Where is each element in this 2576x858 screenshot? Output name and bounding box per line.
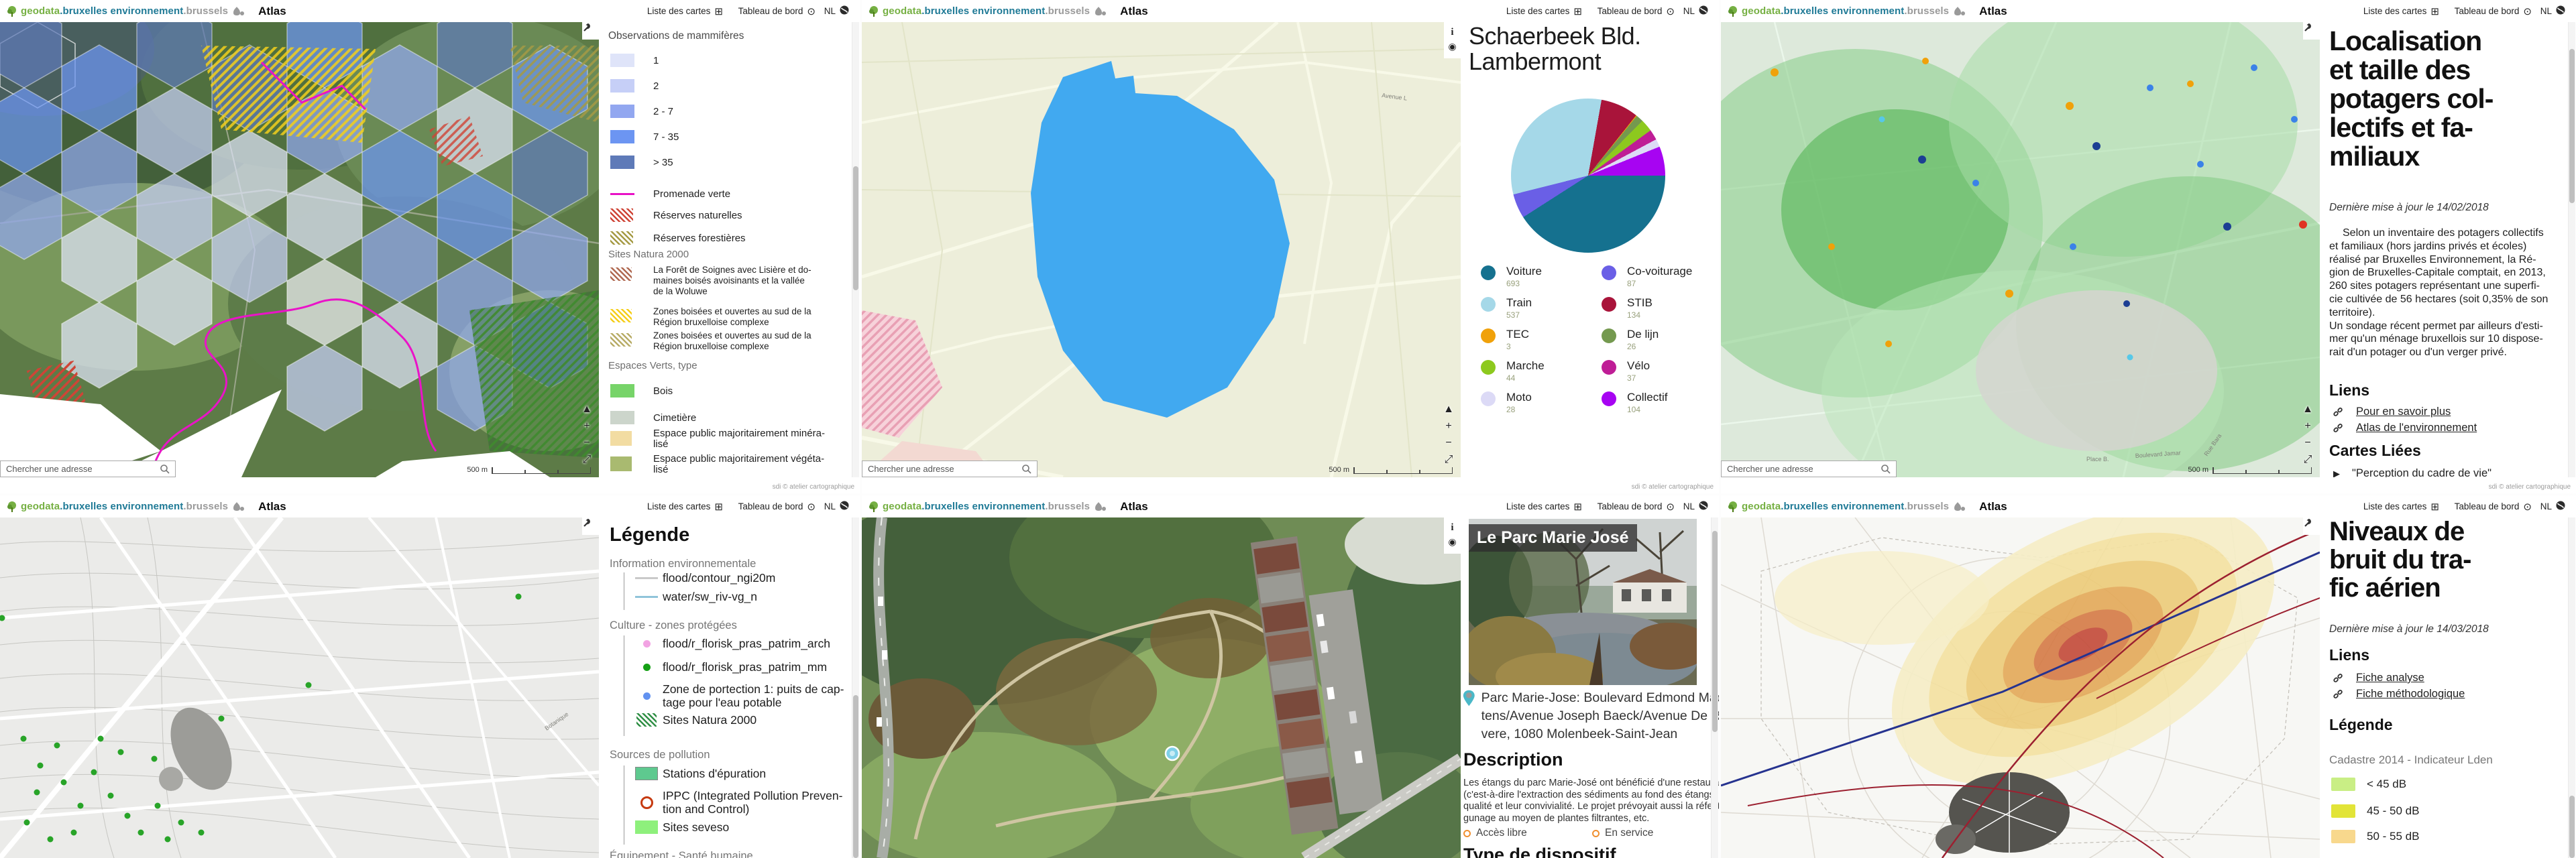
legend-dot — [1481, 360, 1496, 375]
iris-icon — [232, 501, 244, 511]
search-placeholder: Chercher une adresse — [6, 464, 93, 474]
link-fiche-methodologique[interactable]: Fiche méthodologique — [2333, 688, 2465, 700]
hatch-swatch — [610, 309, 632, 322]
tree-icon — [1728, 501, 1738, 513]
nav-language-nl[interactable]: NL — [2540, 0, 2565, 22]
legend-section-title: Sites Natura 2000 — [608, 249, 689, 260]
map-attribution: sdi © atelier cartographique — [773, 483, 854, 491]
swatch — [610, 105, 634, 118]
pie-legend-item: Co-voiturage87 — [1602, 265, 1719, 288]
globe-icon — [1699, 501, 1708, 510]
line-swatch — [635, 596, 658, 598]
fullscreen-button[interactable]: ⤢ — [580, 451, 594, 468]
nav-tableau-de-bord[interactable]: Tableau de bord⊙ — [738, 495, 816, 517]
brand-logo[interactable]: geodata.bruxelles environnement.brussels — [869, 5, 1109, 17]
link-fiche-analyse[interactable]: Fiche analyse — [2333, 672, 2424, 684]
legend-espaces-row: Cimetière — [610, 411, 696, 424]
scrollbar-thumb[interactable] — [1712, 531, 1718, 732]
status-acces-libre: Accès libre — [1463, 827, 1527, 839]
pie-legend-item: TEC3 — [1481, 328, 1600, 351]
scale-bar: 500 m — [2188, 466, 2312, 474]
legend-row: Sites seveso — [630, 820, 729, 834]
app-title: Atlas — [1979, 5, 2007, 18]
globe-icon — [840, 501, 849, 510]
nav-liste-des-cartes[interactable]: Liste des cartes⊞ — [647, 495, 723, 517]
app-title: Atlas — [258, 5, 286, 18]
swatch — [610, 431, 632, 446]
scrollbar-thumb[interactable] — [853, 166, 858, 290]
brand-brussels: .brussels — [183, 5, 228, 17]
map-tools-button[interactable] — [582, 517, 599, 535]
globe-icon — [840, 5, 849, 15]
nav-liste-des-cartes[interactable]: Liste des cartes⊞ — [647, 0, 723, 22]
legend-row: flood/r_florisk_pras_patrim_arch — [630, 637, 830, 650]
legend-row: Zone de portection 1: puits de cap- tage… — [630, 682, 844, 709]
legend-row: < 45 dB — [2331, 778, 2406, 791]
legend-line-row: Promenade verte — [610, 188, 730, 200]
nav-liste-des-cartes[interactable]: Liste des cartes⊞ — [2363, 0, 2439, 22]
rect-swatch — [635, 767, 658, 780]
legend-row: IPPC (Integrated Pollution Preven- tion … — [630, 789, 842, 816]
park-photo: Le Parc Marie José — [1469, 519, 1697, 685]
pie-legend-item: Vélo37 — [1602, 359, 1719, 383]
line-swatch — [635, 577, 658, 579]
sidebar-scrollbar[interactable] — [2568, 22, 2575, 477]
article-panel-potagers: Localisation et taille des potagers col-… — [2320, 22, 2576, 477]
linked-map-item[interactable]: ▶"Perception du cadre de vie" — [2333, 467, 2491, 477]
zoom-in-button[interactable]: + — [580, 418, 594, 434]
tree-icon — [1728, 5, 1738, 17]
legend-row: flood/contour_ngi20m — [630, 571, 775, 585]
iris-icon — [1094, 6, 1106, 16]
hatch-swatch — [610, 333, 632, 347]
grid-icon: ⊞ — [2430, 5, 2439, 17]
legend-section-title: Sources de pollution — [610, 749, 710, 761]
globe-icon — [2556, 501, 2565, 510]
map-tools-button[interactable] — [2303, 517, 2320, 535]
search-icon — [1881, 464, 1891, 474]
locate-button[interactable]: ◉ — [1444, 535, 1461, 548]
target-icon: ⊙ — [1666, 5, 1675, 17]
brand-geodata: geodata — [21, 5, 60, 17]
link-pour-en-savoir-plus[interactable]: Pour en savoir plus — [2333, 406, 2451, 418]
grid-icon: ⊞ — [2430, 501, 2439, 513]
legend-natura-row: Zones boisées et ouvertes au sud de la R… — [610, 330, 811, 352]
swatch — [2331, 778, 2355, 791]
link-icon — [2333, 690, 2343, 698]
bullet-icon — [1592, 830, 1600, 837]
legend-natura-row: La Forêt de Soignes avec Lisière et do- … — [610, 265, 811, 297]
swatch — [2331, 804, 2355, 818]
brand-logo[interactable]: geodata.bruxelles environnement.brussels — [1728, 5, 1968, 17]
legend-class-row: > 35 — [610, 156, 673, 169]
legend-dot — [1481, 391, 1496, 406]
app-header: geodata.bruxelles environnement.brussels… — [0, 495, 860, 517]
legend-section-title: Espaces Verts, type — [608, 360, 697, 371]
swatch — [610, 79, 634, 93]
legend-dot — [1602, 328, 1616, 343]
app-header: geodata.bruxelles environnement.brussels… — [0, 0, 860, 22]
app-header: geodata.bruxelles environnement.brussels… — [862, 0, 1719, 22]
map-canvas-potagers[interactable]: Place B. Boulevard Jamar Rue Bara Cherch… — [1721, 22, 2320, 477]
type-section-title: Type de dispositif — [1463, 845, 1616, 858]
pie-legend-item: Moto28 — [1481, 391, 1600, 414]
legend-natura-row: Zones boisées et ouvertes au sud de la R… — [610, 306, 811, 328]
description-body: Les étangs du parc Marie-José ont bénéfi… — [1463, 778, 1719, 824]
swatch — [610, 130, 634, 143]
search-icon — [1021, 464, 1031, 474]
zoom-in-button[interactable]: + — [2301, 418, 2314, 434]
legend-row: Stations d'épuration — [630, 767, 766, 780]
iris-icon — [1953, 501, 1965, 511]
legend-row: 50 - 55 dB — [2331, 830, 2419, 843]
legend-row: flood/r_florisk_pras_patrim_mm — [630, 660, 827, 674]
target-icon: ⊙ — [1666, 501, 1675, 513]
article-panel-bruit: Niveaux de bruit du tra- fic aérien Dern… — [2320, 517, 2576, 858]
fullscreen-button[interactable]: ⤢ — [1442, 451, 1455, 468]
pan-up-button[interactable]: ▲ — [580, 401, 594, 418]
nav-tableau-de-bord[interactable]: Tableau de bord⊙ — [1598, 0, 1675, 22]
info-button[interactable]: i — [1444, 520, 1461, 535]
sidebar-scrollbar[interactable] — [852, 22, 859, 477]
target-icon: ⊙ — [807, 501, 816, 513]
nav-tableau-de-bord[interactable]: Tableau de bord⊙ — [738, 0, 816, 22]
play-icon: ▶ — [2333, 469, 2340, 478]
swatch — [610, 456, 632, 471]
legend-class-row: 2 — [610, 79, 659, 93]
legend-row: 45 - 50 dB — [2331, 804, 2419, 818]
globe-icon — [1699, 5, 1708, 15]
legend-section-title: Information environnementale — [610, 558, 756, 570]
target-icon: ⊙ — [2523, 501, 2532, 513]
sidebar-scrollbar[interactable] — [2568, 517, 2575, 858]
legend-class-row: 7 - 35 — [610, 130, 679, 143]
pie-legend-item: Voiture693 — [1481, 265, 1600, 288]
scale-bar: 500 m — [467, 466, 591, 474]
map-marker — [1166, 747, 1179, 760]
panel-observations-mammiferes: geodata.bruxelles environnement.brussels… — [0, 0, 860, 493]
sidebar-scrollbar[interactable] — [852, 517, 859, 858]
sidebar-scrollbar[interactable] — [1711, 517, 1718, 858]
brand-logo[interactable]: geodata.bruxelles environnement.brussels — [7, 5, 247, 17]
link-atlas-environnement[interactable]: Atlas de l'environnement — [2333, 422, 2477, 434]
brand-logo[interactable]: geodata.bruxelles environnement.brussels — [7, 501, 247, 513]
scale-bar: 500 m — [1329, 466, 1453, 474]
legend-subtitle: Cadastre 2014 - Indicateur Lden — [2329, 753, 2493, 767]
iris-icon — [1953, 6, 1965, 16]
street-label: Place B. — [2086, 456, 2109, 463]
nav-liste-des-cartes[interactable]: Liste des cartes⊞ — [2363, 495, 2439, 517]
map-tools-button[interactable] — [582, 22, 599, 40]
iris-icon — [1094, 501, 1106, 511]
map-pin-icon — [1462, 689, 1476, 707]
nav-language-nl[interactable]: NL — [1683, 495, 1708, 517]
app-header: geodata.bruxelles environnement.brussels… — [1721, 495, 2576, 517]
pie-legend-item: Collectif104 — [1602, 391, 1719, 414]
search-icon — [160, 464, 170, 474]
swatch — [610, 384, 634, 397]
nav-language-nl[interactable]: NL — [824, 0, 849, 22]
tree-icon — [869, 5, 879, 17]
screenshot-montage: geodata.bruxelles environnement.brussels… — [0, 0, 2576, 858]
panel-parc-marie-jose: geodata.bruxelles environnement.brussels… — [862, 495, 1719, 858]
app-title: Atlas — [258, 500, 286, 513]
panel-potagers: geodata.bruxelles environnement.brussels… — [1721, 0, 2576, 493]
nav-tableau-de-bord[interactable]: Tableau de bord⊙ — [2455, 495, 2532, 517]
green-density-layer — [1721, 22, 2320, 477]
dot-swatch — [643, 692, 651, 700]
pan-up-button[interactable]: ▲ — [2301, 401, 2314, 418]
hatch-swatch — [610, 208, 633, 222]
legend-class-row: 1 — [610, 54, 659, 67]
grid-icon: ⊞ — [1573, 5, 1582, 17]
scrollbar-thumb[interactable] — [2569, 49, 2575, 203]
app-header: geodata.bruxelles environnement.brussels… — [1721, 0, 2576, 22]
description-title: Description — [1463, 749, 1563, 770]
pie-legend-item: Train537 — [1481, 296, 1600, 320]
iris-icon — [232, 6, 244, 16]
scrollbar-thumb[interactable] — [2569, 796, 2575, 858]
panel-pollution-legende: geodata.bruxelles environnement.brussels… — [0, 495, 860, 858]
legend-espaces-row: Espace public majoritairement végéta- li… — [610, 454, 824, 475]
swatch — [2331, 830, 2355, 843]
noise-contour-west — [1775, 551, 1989, 645]
nav-tableau-de-bord[interactable]: Tableau de bord⊙ — [2455, 0, 2532, 22]
map-canvas-mammals[interactable]: Chercher une adresse 500 m ▲ + − ⤢ — [0, 22, 599, 477]
brand-env: .bruxelles environnement — [60, 5, 183, 17]
zoom-out-button[interactable]: − — [580, 434, 594, 451]
map-attribution: sdi © atelier cartographique — [2489, 483, 2571, 491]
grid-icon: ⊞ — [714, 501, 723, 513]
article-body: Selon un inventaire des potagers collect… — [2329, 227, 2565, 359]
photo-title-overlay: Le Parc Marie José — [1469, 524, 1637, 552]
brand-logo[interactable]: geodata.bruxelles environnement.brussels — [1728, 501, 1968, 513]
bullet-icon — [1463, 830, 1471, 837]
wrench-icon — [2303, 517, 2313, 528]
pie-legend-item: De lijn26 — [1602, 328, 1719, 351]
tree-icon — [869, 501, 879, 513]
target-icon: ⊙ — [2523, 5, 2532, 17]
scrollbar-thumb[interactable] — [853, 695, 858, 858]
app-title: Atlas — [1120, 500, 1148, 513]
search-address-input[interactable]: Chercher une adresse — [862, 461, 1038, 477]
grid-icon: ⊞ — [714, 5, 723, 17]
search-address-input[interactable]: Chercher une adresse — [0, 461, 176, 477]
legend-panel-pollution: Légende Information environnementale flo… — [599, 517, 860, 858]
legend-dot — [1602, 391, 1616, 406]
brand-logo[interactable]: geodata.bruxelles environnement.brussels — [869, 501, 1109, 513]
nav-language-nl[interactable]: NL — [1683, 0, 1708, 22]
legend-dot — [1481, 265, 1496, 280]
wrench-icon — [582, 517, 592, 528]
pie-legend-col1: Voiture693 Train537 TEC3 Marche44 Moto28 — [1481, 265, 1600, 422]
line-swatch — [610, 193, 634, 195]
zoom-out-button[interactable]: − — [2301, 434, 2314, 451]
article-title: Localisation et taille des potagers col-… — [2329, 27, 2567, 171]
legend-title: Observations de mammifères — [608, 30, 744, 42]
legend-section-title: Légende — [2329, 716, 2393, 734]
map-canvas-aerial[interactable]: i ◉ — [862, 517, 1461, 858]
nav-language-nl[interactable]: NL — [2540, 495, 2565, 517]
last-updated: Dernière mise à jour le 14/03/2018 — [2329, 623, 2489, 635]
nav-liste-des-cartes[interactable]: Liste des cartes⊞ — [1506, 0, 1582, 22]
wrench-icon — [2303, 22, 2313, 32]
app-title: Atlas — [1120, 5, 1148, 18]
modal-split-pie-chart — [1511, 99, 1665, 253]
app-title: Atlas — [1979, 500, 2007, 513]
zoom-out-button[interactable]: − — [1442, 434, 1455, 451]
swatch — [610, 411, 634, 424]
legend-panel-mammals: Observations de mammifères 1 2 2 - 7 7 -… — [599, 22, 860, 477]
fullscreen-button[interactable]: ⤢ — [2301, 451, 2314, 468]
app-header: geodata.bruxelles environnement.brussels… — [862, 495, 1719, 517]
links-section-title: Liens — [2329, 381, 2369, 400]
map-canvas-schaerbeek[interactable]: Avenue L Chercher une adresse 500 m ▲ + … — [862, 22, 1461, 477]
legend-title: Légende — [610, 524, 689, 546]
locate-button[interactable]: ◉ — [1444, 40, 1461, 53]
rect-swatch — [635, 820, 658, 834]
pie-legend-item: Marche44 — [1481, 359, 1600, 383]
link-icon — [2333, 408, 2343, 416]
info-button[interactable]: i — [1444, 25, 1461, 40]
dot-swatch — [643, 664, 651, 671]
links-section-title: Liens — [2329, 646, 2369, 664]
legend-row: Sites Natura 2000 — [630, 713, 757, 727]
legend-hatch-row: Réserves forestières — [610, 231, 746, 245]
zoom-in-button[interactable]: + — [1442, 418, 1455, 434]
hatch-swatch — [636, 713, 657, 727]
ring-swatch — [640, 796, 653, 809]
wrench-icon — [582, 22, 592, 32]
legend-row: water/sw_riv-vg_n — [630, 590, 757, 603]
grid-icon: ⊞ — [1573, 501, 1582, 513]
dot-swatch — [643, 640, 651, 648]
legend-section-title: Équipement - Santé humaine — [610, 850, 753, 858]
link-icon — [2333, 674, 2343, 682]
legend-dot — [1481, 328, 1496, 343]
panel-schaerbeek-lambermont: geodata.bruxelles environnement.brussels… — [862, 0, 1719, 493]
map-canvas-noise[interactable] — [1721, 517, 2320, 858]
legend-section-title: Culture - zones protégées — [610, 619, 737, 632]
panel-bruit-aerien: geodata.bruxelles environnement.brussels… — [1721, 495, 2576, 858]
linked-maps-section-title: Cartes Liées — [2329, 442, 2421, 460]
hatch-swatch — [610, 267, 632, 281]
legend-dot — [1481, 297, 1496, 312]
tree-icon — [7, 5, 17, 17]
globe-icon — [2556, 5, 2565, 15]
last-updated: Dernière mise à jour le 14/02/2018 — [2329, 202, 2489, 214]
legend-espaces-row: Espace public majoritairement minéra- li… — [610, 428, 825, 450]
target-icon: ⊙ — [807, 5, 816, 17]
feature-address: Parc Marie-Jose: Boulevard Edmond Mach t… — [1481, 689, 1719, 743]
status-en-service: En service — [1592, 827, 1653, 839]
search-address-input[interactable]: Chercher une adresse — [1721, 461, 1897, 477]
district-stats-panel: Schaerbeek Bld. Lambermont Voiture693 Tr… — [1461, 22, 1719, 477]
tree-icon — [7, 501, 17, 513]
legend-class-row: 2 - 7 — [610, 105, 673, 118]
legend-espaces-row: Bois — [610, 384, 673, 397]
map-canvas-pollution[interactable]: Botanique — [0, 517, 599, 858]
legend-dot — [1602, 265, 1616, 280]
nav-language-nl[interactable]: NL — [824, 495, 849, 517]
hatch-swatch — [610, 231, 633, 245]
article-title: Niveaux de bruit du tra- fic aérien — [2329, 517, 2567, 602]
map-tools-button[interactable] — [2303, 22, 2320, 40]
link-icon — [2333, 424, 2343, 432]
pie-legend-item: STIB134 — [1602, 296, 1719, 320]
legend-hatch-row: Réserves naturelles — [610, 208, 742, 222]
swatch — [610, 156, 634, 169]
nav-tableau-de-bord[interactable]: Tableau de bord⊙ — [1598, 495, 1675, 517]
swatch — [610, 54, 634, 67]
legend-dot — [1602, 360, 1616, 375]
map-attribution: sdi © atelier cartographique — [1632, 483, 1714, 491]
pan-up-button[interactable]: ▲ — [1442, 401, 1455, 418]
district-title: Schaerbeek Bld. Lambermont — [1469, 23, 1641, 74]
legend-dot — [1602, 297, 1616, 312]
pie-legend-col2: Co-voiturage87 STIB134 De lijn26 Vélo37 … — [1602, 265, 1719, 422]
feature-info-panel: Le Parc Marie José Parc Marie-Jose: Boul… — [1461, 517, 1719, 858]
nav-liste-des-cartes[interactable]: Liste des cartes⊞ — [1506, 495, 1582, 517]
